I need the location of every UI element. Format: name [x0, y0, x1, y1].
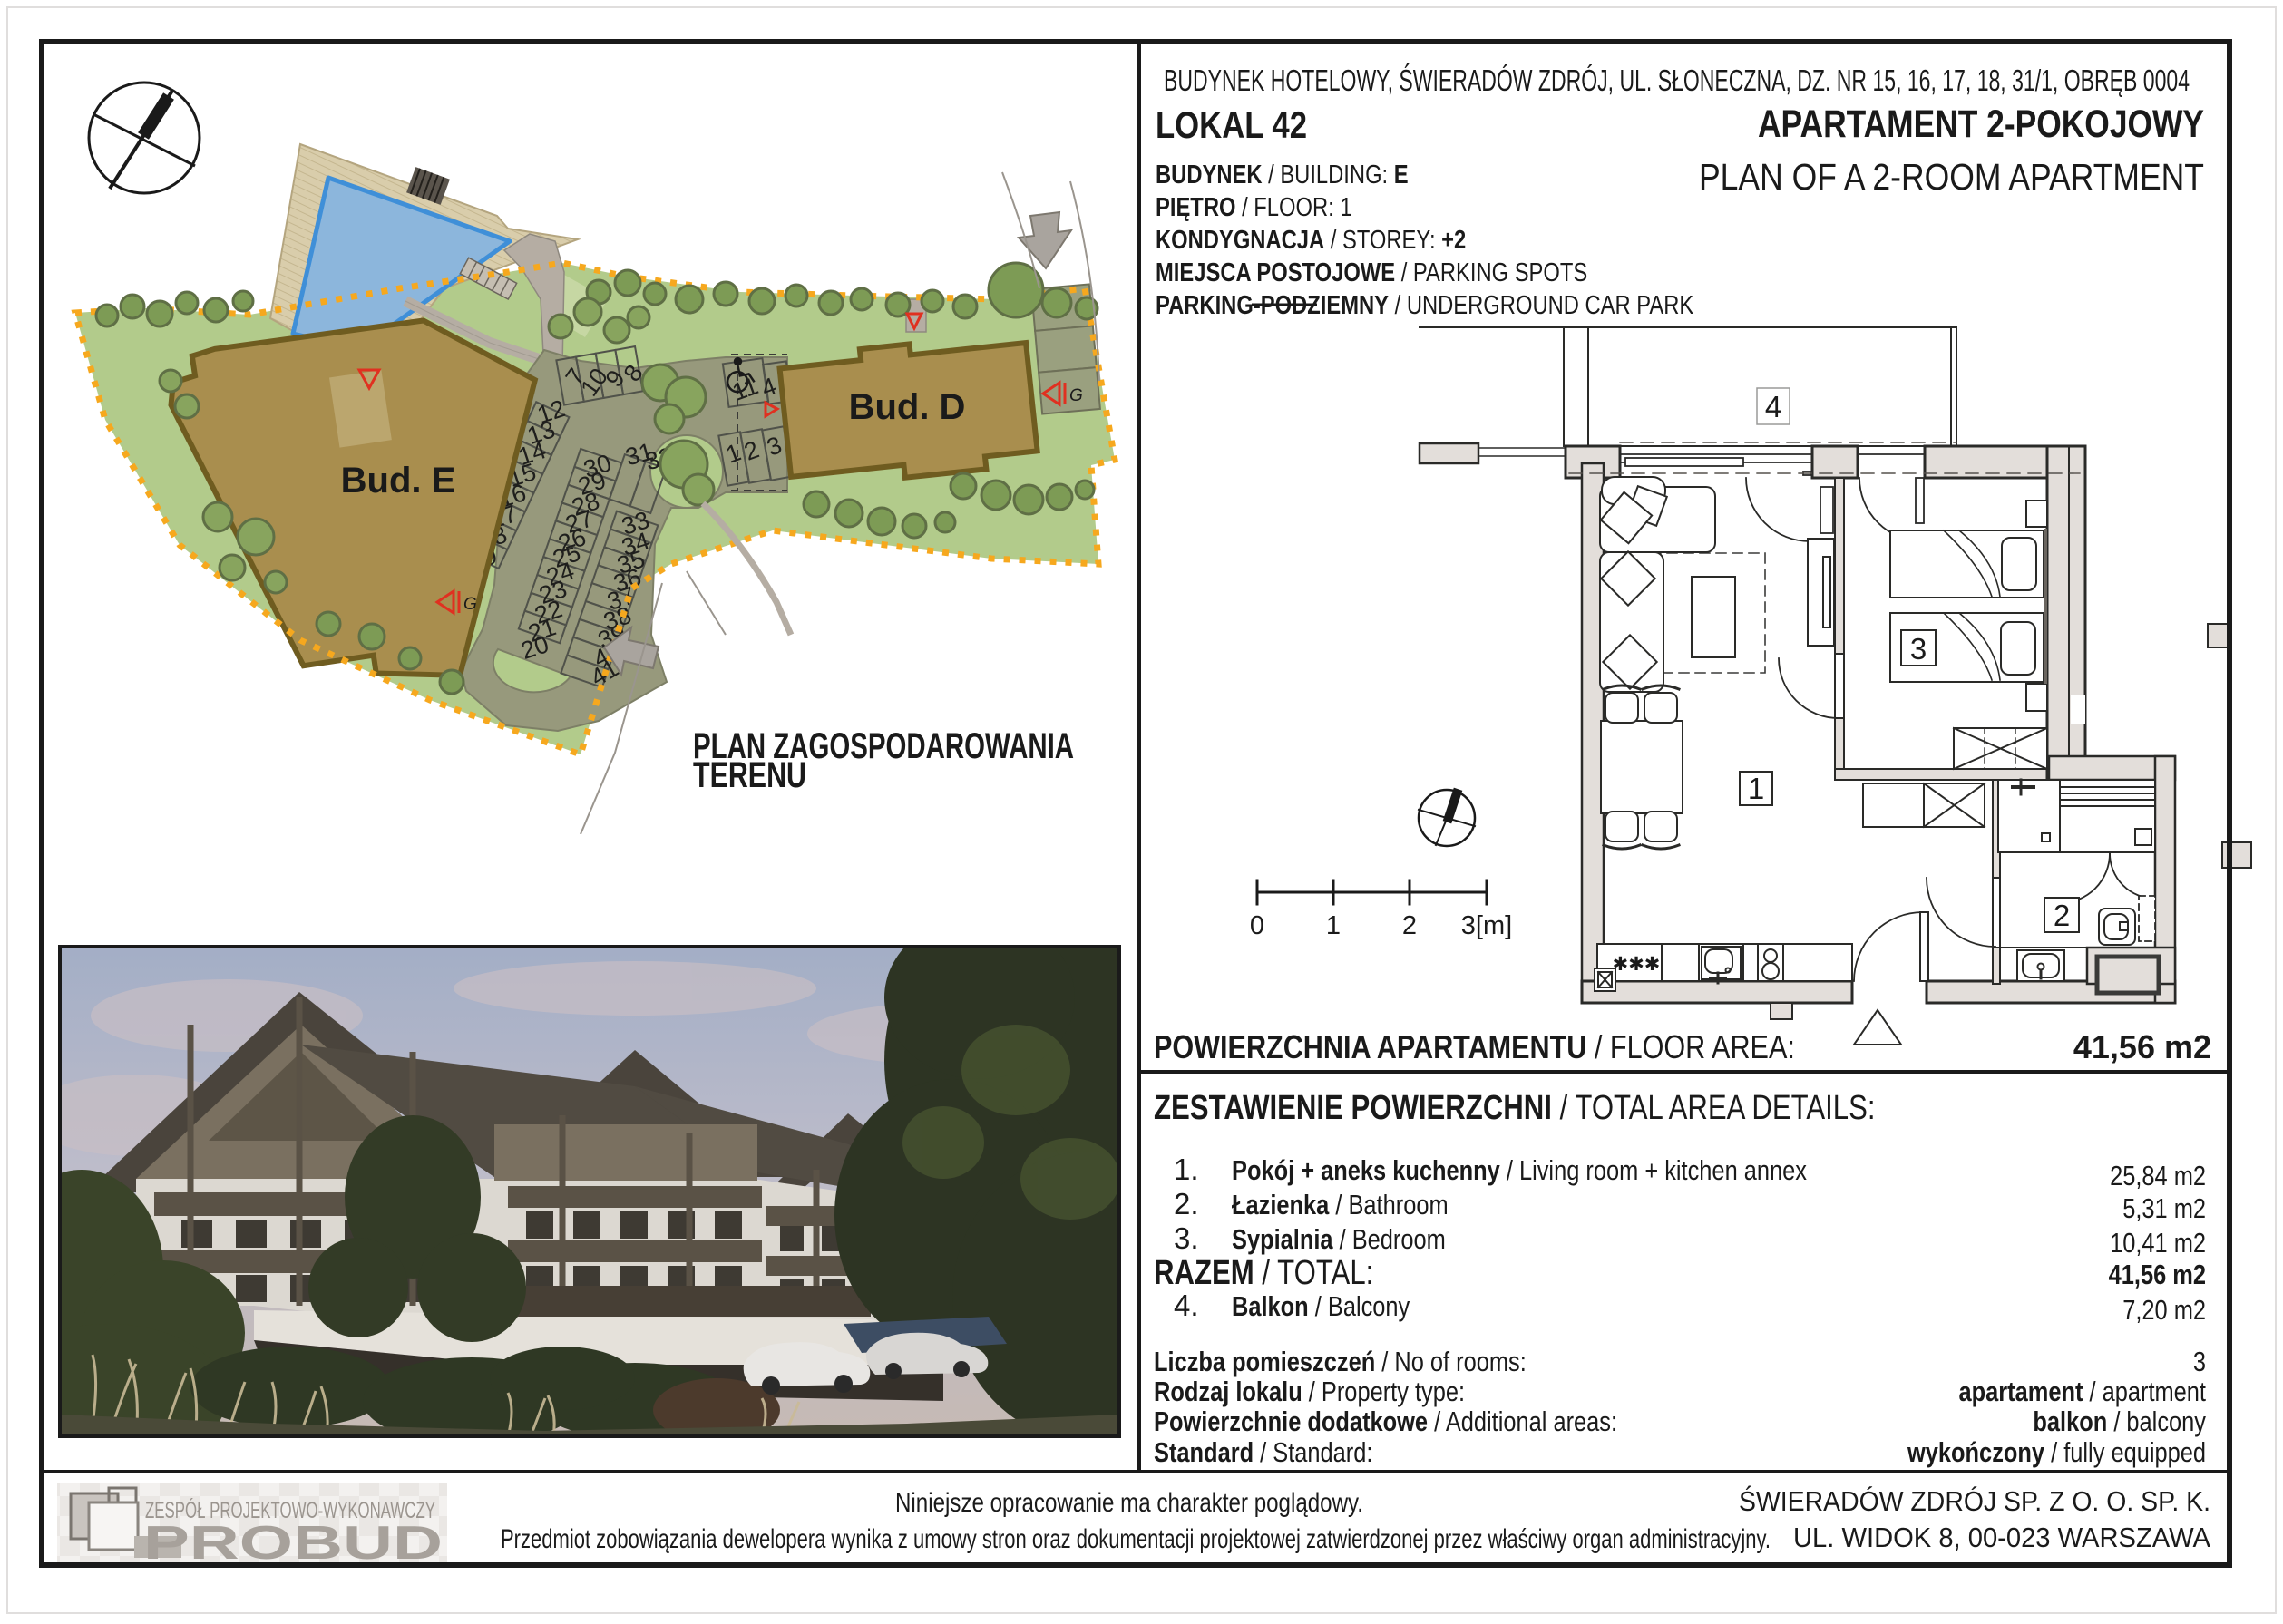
svg-text:PARKING-PODZIEMNY / UNDERGROUN: PARKING-PODZIEMNY / UNDERGROUND CAR PARK: [1156, 290, 1694, 320]
svg-text:PIĘTRO / FLOOR: 1: PIĘTRO / FLOOR: 1: [1156, 192, 1352, 222]
svg-text:APARTAMENT 2-POKOJOWY: APARTAMENT 2-POKOJOWY: [1758, 102, 2204, 146]
svg-text:apartament / apartment: apartament / apartment: [1958, 1376, 2206, 1408]
svg-text:2: 2: [2054, 899, 2070, 932]
svg-text:25,84 m2: 25,84 m2: [2110, 1161, 2206, 1192]
svg-text:✱✱✱: ✱✱✱: [1613, 954, 1661, 975]
svg-text:Niniejsze opracowanie ma chara: Niniejsze opracowanie ma charakter poglą…: [895, 1488, 1363, 1518]
svg-text:Rodzaj lokalu / Property type:: Rodzaj lokalu / Property type:: [1154, 1376, 1465, 1408]
svg-text:Powierzchnie dodatkowe / Addit: Powierzchnie dodatkowe / Additional area…: [1154, 1406, 1617, 1438]
svg-text:7,20 m2: 7,20 m2: [2122, 1295, 2206, 1327]
svg-text:ŚWIERADÓW ZDRÓJ SP. Z O. O. SP: ŚWIERADÓW ZDRÓJ SP. Z O. O. SP. K.: [1739, 1484, 2210, 1517]
svg-text:Standard / Standard:: Standard / Standard:: [1154, 1437, 1372, 1469]
svg-text:G: G: [1069, 386, 1083, 405]
svg-text:4.: 4.: [1174, 1289, 1199, 1322]
svg-text:POWIERZCHNIA APARTAMENTU / FLO: POWIERZCHNIA APARTAMENTU / FLOOR AREA:: [1154, 1030, 1795, 1066]
svg-text:BUDYNEK / BUILDING: E: BUDYNEK / BUILDING: E: [1156, 160, 1409, 190]
svg-text:3.: 3.: [1174, 1221, 1199, 1255]
svg-text:KONDYGNACJA / STOREY: +2: KONDYGNACJA / STOREY: +2: [1156, 225, 1466, 255]
svg-text:LOKAL 42: LOKAL 42: [1156, 103, 1307, 146]
svg-text:Bud. E: Bud. E: [341, 461, 456, 501]
svg-text:1: 1: [1326, 911, 1341, 940]
svg-text:2.: 2.: [1174, 1187, 1199, 1220]
svg-text:Pokój + aneks kuchenny / Livin: Pokój + aneks kuchenny / Living room + k…: [1232, 1155, 1807, 1187]
svg-text:2: 2: [1402, 911, 1417, 940]
svg-text:balkon / balcony: balkon / balcony: [2033, 1406, 2206, 1438]
svg-text:BUDYNEK HOTELOWY, ŚWIERADÓW ZD: BUDYNEK HOTELOWY, ŚWIERADÓW ZDRÓJ, UL. S…: [1164, 63, 2190, 97]
svg-text:41,56 m2: 41,56 m2: [2073, 1028, 2211, 1065]
svg-text:0: 0: [1250, 911, 1264, 940]
svg-text:G: G: [463, 595, 477, 614]
svg-text:UL. WIDOK 8, 00-023 WARSZAWA: UL. WIDOK 8, 00-023 WARSZAWA: [1793, 1522, 2210, 1553]
svg-text:4: 4: [1765, 390, 1781, 423]
svg-text:41,56 m2: 41,56 m2: [2109, 1259, 2206, 1291]
svg-text:RAZEM / TOTAL:: RAZEM / TOTAL:: [1154, 1254, 1373, 1292]
svg-text:Sypialnia / Bedroom: Sypialnia / Bedroom: [1232, 1224, 1446, 1256]
svg-text:PROBUD: PROBUD: [143, 1517, 443, 1570]
svg-text:1.: 1.: [1174, 1152, 1199, 1186]
svg-text:Liczba pomieszczeń / No of roo: Liczba pomieszczeń / No of rooms:: [1154, 1347, 1527, 1378]
svg-text:MIEJSCA POSTOJOWE / PARKING SP: MIEJSCA POSTOJOWE / PARKING SPOTS: [1156, 258, 1587, 287]
svg-text:wykończony / fully equipped: wykończony / fully equipped: [1907, 1437, 2206, 1469]
svg-text:10,41 m2: 10,41 m2: [2110, 1228, 2206, 1259]
svg-text:Łazienka / Bathroom: Łazienka / Bathroom: [1232, 1190, 1449, 1221]
svg-text:3[m]: 3[m]: [1461, 911, 1512, 940]
svg-text:1: 1: [1748, 772, 1764, 805]
svg-text:5,31 m2: 5,31 m2: [2122, 1193, 2206, 1225]
svg-text:PLAN OF A 2-ROOM APARTMENT: PLAN OF A 2-ROOM APARTMENT: [1699, 156, 2204, 198]
svg-text:TERENU: TERENU: [693, 755, 806, 795]
svg-text:3: 3: [2193, 1347, 2206, 1378]
svg-text:ZESTAWIENIE POWIERZCHNI / TOTA: ZESTAWIENIE POWIERZCHNI / TOTAL AREA DET…: [1154, 1089, 1876, 1127]
svg-text:Balkon / Balcony: Balkon / Balcony: [1232, 1291, 1410, 1323]
svg-text:Przedmiot zobowiązania dewelop: Przedmiot zobowiązania dewelopera wynika…: [501, 1524, 1771, 1554]
svg-text:3: 3: [1910, 632, 1927, 666]
svg-text:Bud. D: Bud. D: [849, 387, 966, 427]
